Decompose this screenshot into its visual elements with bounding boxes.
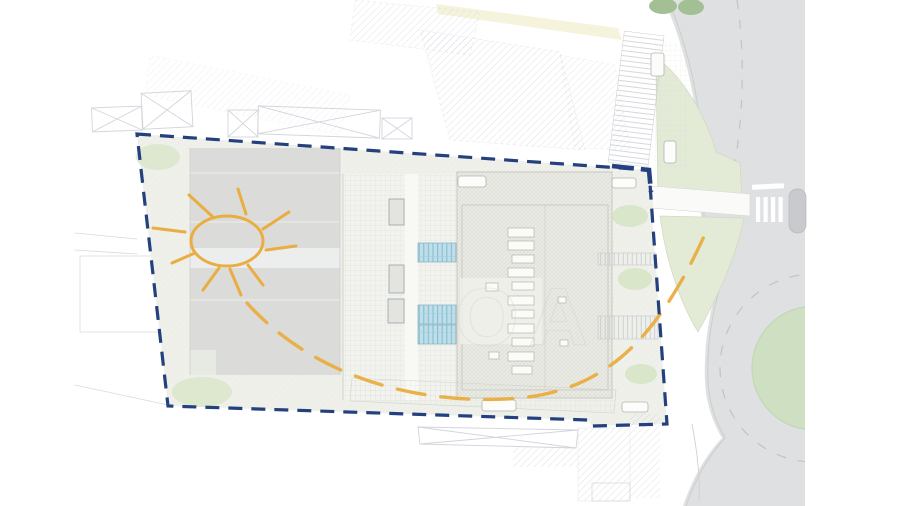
site-plan-drawing: OA	[0, 0, 900, 506]
bush-topleft	[136, 144, 180, 170]
traffic-island	[789, 189, 806, 233]
south-context	[418, 414, 699, 501]
tree-2	[618, 268, 652, 290]
roundabout-center-green	[752, 306, 876, 430]
site-plan-image: OA	[0, 0, 900, 506]
north-parking	[608, 31, 690, 170]
car	[482, 400, 516, 411]
car	[458, 176, 486, 187]
tree-1	[612, 205, 648, 227]
parking-row-east-1	[598, 253, 656, 265]
bush-bottomleft	[172, 377, 232, 407]
watermark: OA	[455, 272, 598, 363]
car	[651, 53, 664, 76]
car	[612, 178, 636, 188]
tree-3	[625, 364, 657, 384]
left-building	[190, 148, 340, 375]
car	[664, 141, 676, 163]
circulation-strip	[343, 174, 457, 400]
car	[622, 402, 648, 412]
